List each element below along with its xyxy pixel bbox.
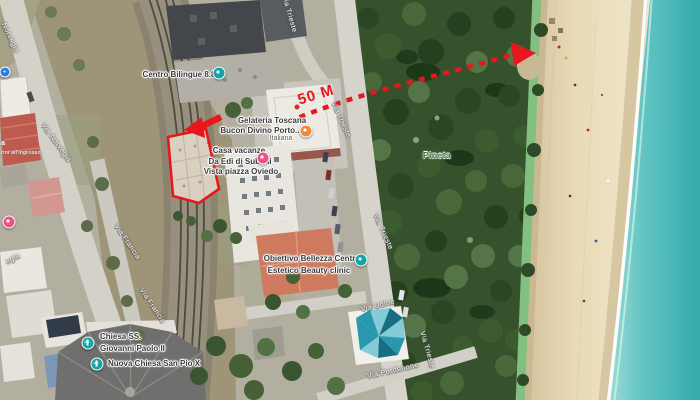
poi-label-obiettivo-line2[interactable]: Estetico Beauty clinic <box>268 266 351 277</box>
poi-label-centro-bilingue[interactable]: Centro Bilingue 8.8 <box>143 70 216 81</box>
poi-label-gelateria-line1[interactable]: Gelateria Toscana <box>238 116 306 127</box>
church-icon[interactable] <box>82 337 95 350</box>
poi-label-chiesa-ss-line2[interactable]: Giovanni Paolo II <box>100 344 165 355</box>
poi-label-warehouse-line1: ria <box>0 140 5 147</box>
lodging-icon[interactable] <box>3 216 16 229</box>
satellite-map[interactable]: Norvegia Via Norvegia egia Via Francia V… <box>0 0 700 400</box>
restaurant-icon[interactable] <box>300 125 313 138</box>
lodging-icon[interactable] <box>257 152 270 165</box>
poi-label-obiettivo-line1[interactable]: Obiettivo Bellezza Centro <box>264 254 360 265</box>
shop-icon[interactable] <box>0 67 11 78</box>
poi-label-chiesa-ss-line1[interactable]: Chiesa SS. <box>100 332 141 343</box>
church-icon[interactable] <box>91 358 104 371</box>
poi-label-nuova-chiesa[interactable]: Nuova Chiesa San Pio X <box>108 359 200 370</box>
poi-label-casa-vacanze-line3[interactable]: Vista piazza Oviedo <box>204 167 279 178</box>
poi-label-gelateria-line3[interactable]: Italiana <box>270 134 293 145</box>
building-pink-roof <box>28 177 65 217</box>
building-teal-roof <box>348 306 409 365</box>
spa-icon[interactable] <box>355 254 368 267</box>
poi-label-warehouse-line2: azzini all'ingrosso <box>0 150 41 156</box>
area-label-pineta: Pineta <box>423 150 451 160</box>
school-icon[interactable] <box>213 67 226 80</box>
